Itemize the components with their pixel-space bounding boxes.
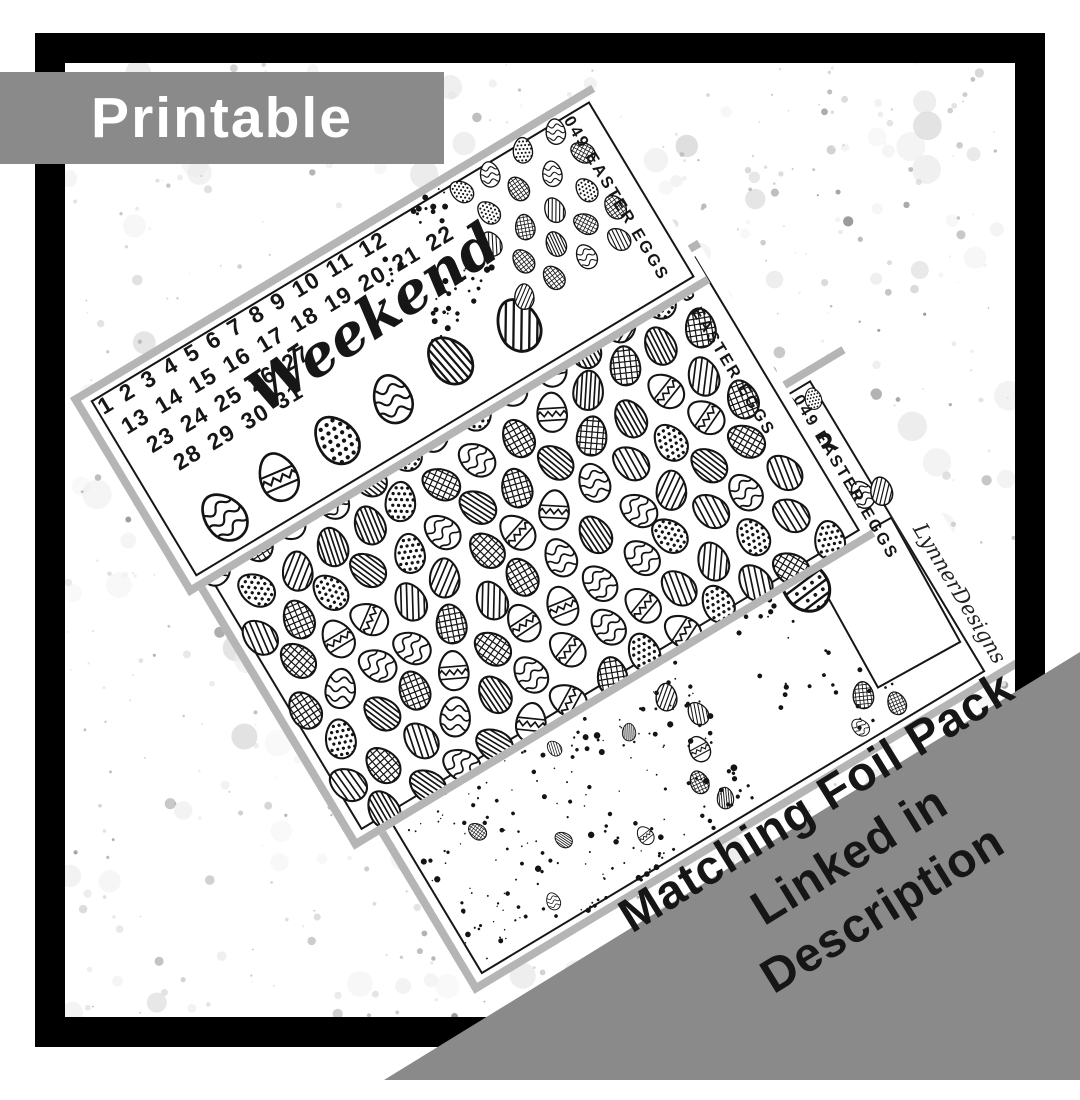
printable-badge: Printable (0, 72, 444, 164)
printable-badge-label: Printable (91, 85, 353, 151)
product-listing-image: HAPPY EASTER 049 EASTER EGGS LynnerDesig… (0, 0, 1080, 1080)
